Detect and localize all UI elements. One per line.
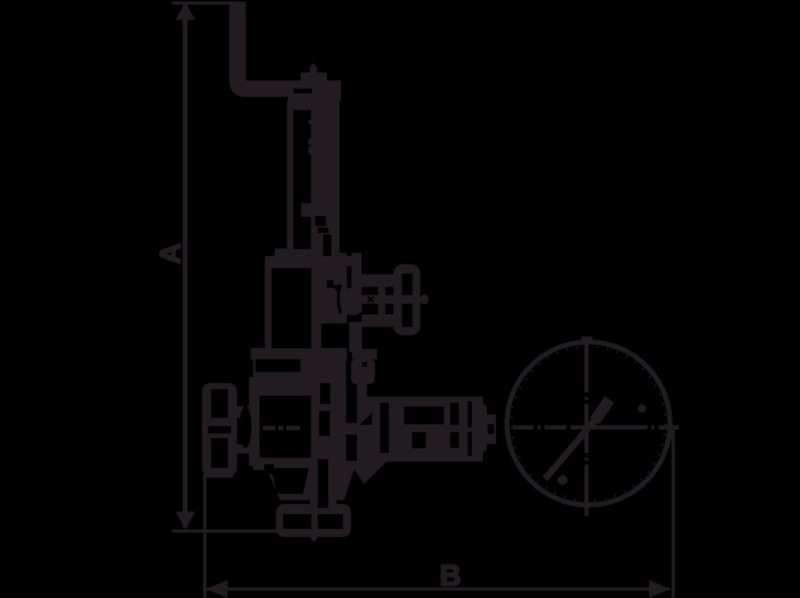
- svg-text:A: A: [155, 243, 187, 264]
- svg-text:B: B: [440, 560, 462, 593]
